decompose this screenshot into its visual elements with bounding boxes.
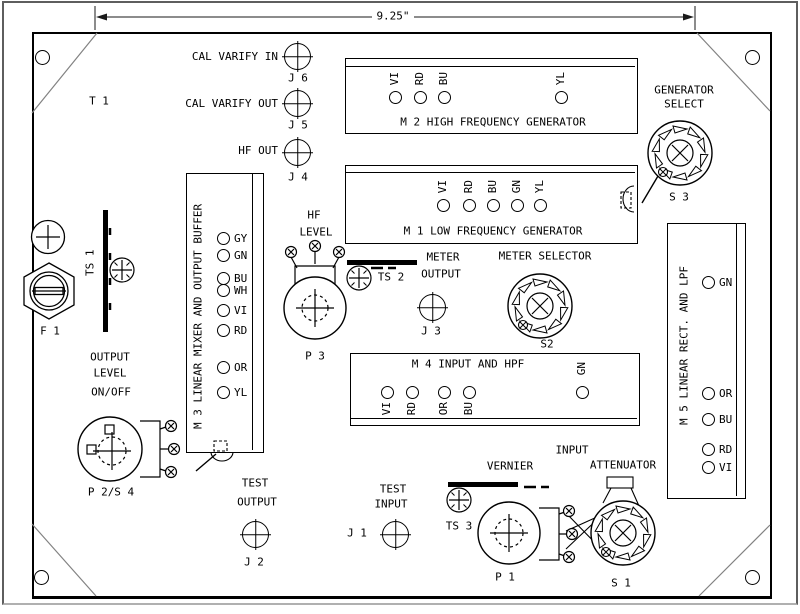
led-indicator (463, 386, 476, 399)
fuse-holder (20, 260, 78, 322)
vernier-label: VERNIER (487, 460, 533, 473)
output-level-ref: P 2/S 4 (88, 486, 134, 499)
transformer-ref: T 1 (89, 95, 109, 108)
led-indicator (702, 443, 715, 456)
led-indicator (217, 324, 230, 337)
led-indicator (217, 232, 230, 245)
screw (345, 264, 373, 292)
hf-level-label: HF (307, 209, 320, 222)
led-label: GN (719, 276, 732, 289)
module-m2-title: M 2 HIGH FREQUENCY GENERATOR (400, 116, 585, 129)
led-label: RD (462, 180, 475, 193)
jack-j4-label: HF OUT (238, 144, 278, 157)
led-indicator (487, 199, 500, 212)
led-indicator (217, 304, 230, 317)
jack-j6-label: CAL VARIFY IN (192, 50, 278, 63)
jack-j3 (419, 294, 446, 321)
led-label: RD (405, 402, 418, 415)
led-indicator (702, 387, 715, 400)
generator-select-label: SELECT (664, 98, 704, 111)
led-label: WH (234, 284, 247, 297)
led-indicator (217, 284, 230, 297)
jack-j6-ref: J 6 (288, 72, 308, 85)
led-label: YL (533, 180, 546, 193)
led-indicator (702, 276, 715, 289)
meter-output-label: OUTPUT (421, 268, 461, 281)
vernier-ref: P 1 (495, 571, 515, 584)
vernier-pot (469, 488, 581, 580)
jack-j2-ref: J 2 (244, 556, 264, 569)
jack-j6 (284, 43, 311, 70)
led-indicator (437, 199, 450, 212)
module-m3-title: M 3 LINEAR MIXER AND OUTPUT BUFFER (191, 202, 205, 430)
led-indicator (438, 386, 451, 399)
output-level-pot (68, 403, 184, 495)
input-attenuator-knob (585, 495, 661, 571)
module-m1-title: M 1 LOW FREQUENCY GENERATOR (404, 225, 583, 238)
panel-screw (28, 217, 68, 257)
led-label: BU (486, 180, 499, 193)
jack-j1 (382, 521, 409, 548)
generator-select-label: GENERATOR (654, 84, 714, 97)
led-label: BU (719, 413, 732, 426)
test-input-label: TEST (380, 483, 407, 496)
output-level-label: LEVEL (93, 367, 126, 380)
meter-selector-label: METER SELECTOR (499, 250, 592, 263)
jack-j5-ref: J 5 (288, 119, 308, 132)
led-label: VI (436, 180, 449, 193)
input-attenuator-ref: S 1 (611, 577, 631, 590)
led-label: BU (437, 72, 450, 85)
led-indicator (511, 199, 524, 212)
led-indicator (381, 386, 394, 399)
jack-j3-ref: J 3 (421, 325, 441, 338)
module-m5-inner-line (736, 224, 737, 496)
led-indicator (702, 461, 715, 474)
led-indicator (438, 91, 451, 104)
meter-selector-knob (502, 268, 578, 344)
screw (108, 256, 136, 284)
output-level-label: ON/OFF (91, 386, 131, 399)
meter-selector-ref: S2 (540, 338, 553, 351)
led-label: RD (413, 72, 426, 85)
led-label: YL (234, 386, 247, 399)
meter-output-label: METER (426, 251, 459, 264)
led-indicator (463, 199, 476, 212)
input-attenuator-label: ATTENUATOR (590, 459, 656, 472)
module-m4-inner-line (351, 418, 637, 419)
led-label: VI (234, 304, 247, 317)
led-label: VI (719, 461, 732, 474)
led-label: GN (234, 249, 247, 262)
led-label: OR (437, 402, 450, 415)
test-input-label: INPUT (374, 498, 407, 511)
led-indicator (389, 91, 402, 104)
dimension-label: 9.25" (376, 10, 409, 23)
led-indicator (217, 249, 230, 262)
led-label: GY (234, 232, 247, 245)
jack-j5-label: CAL VARIFY OUT (185, 97, 278, 110)
fuse-ref: F 1 (40, 325, 60, 338)
jack-j2 (242, 521, 269, 548)
terminal-strip-ts1-label: TS 1 (83, 244, 97, 282)
led-label: GN (575, 362, 588, 375)
module-m3-inner-line (252, 174, 253, 450)
generator-select-ref: S 3 (669, 191, 689, 204)
jack-j5 (284, 90, 311, 117)
led-label: RD (719, 443, 732, 456)
jack-j1-ref: J 1 (347, 527, 367, 540)
led-label: OR (719, 387, 732, 400)
hf-level-ref: P 3 (305, 350, 325, 363)
led-label: VI (380, 402, 393, 415)
panel-drawing: 9.25" T 1 CAL VARIFY IN J 6 CAL VARIFY O… (0, 0, 800, 614)
led-label: YL (554, 72, 567, 85)
generator-select-knob (642, 115, 718, 191)
led-indicator (702, 413, 715, 426)
input-attenuator-label: INPUT (555, 444, 588, 457)
terminal-strip-ts2-label: TS 2 (378, 271, 405, 284)
module-m2-inner-line (346, 66, 635, 67)
led-indicator (406, 386, 419, 399)
led-label: BU (462, 402, 475, 415)
output-level-label: OUTPUT (90, 351, 130, 364)
test-output-label: OUTPUT (237, 496, 277, 509)
led-label: VI (388, 72, 401, 85)
led-indicator (555, 91, 568, 104)
led-indicator (217, 386, 230, 399)
led-indicator (414, 91, 427, 104)
led-indicator (217, 361, 230, 374)
jack-j4 (284, 139, 311, 166)
jack-j4-ref: J 4 (288, 171, 308, 184)
led-label: OR (234, 361, 247, 374)
led-label: RD (234, 324, 247, 337)
module-m1-inner-line (346, 172, 635, 173)
module-m4-title: M 4 INPUT AND HPF (412, 358, 525, 371)
test-output-label: TEST (242, 477, 269, 490)
module-m5-title: M 5 LINEAR RECT. AND LPF (677, 258, 691, 433)
led-indicator (534, 199, 547, 212)
led-indicator (576, 386, 589, 399)
led-label: GN (510, 180, 523, 193)
